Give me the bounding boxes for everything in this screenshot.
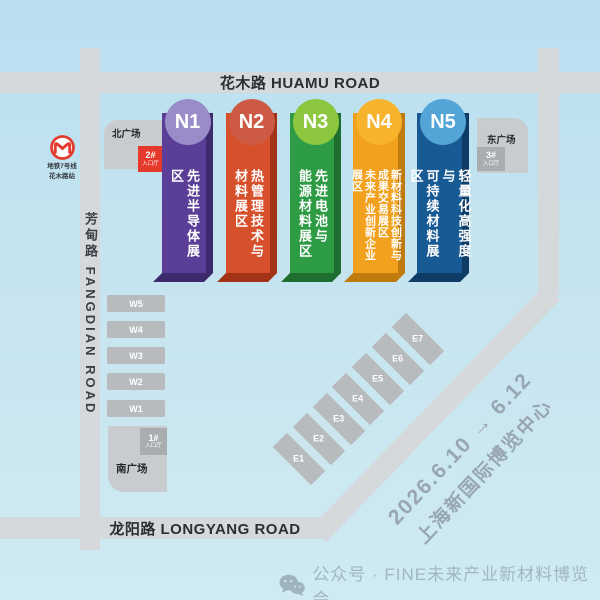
- south-plaza-label: 南广场: [116, 461, 148, 476]
- east-plaza: 东广场 3# 入口厅: [477, 118, 528, 173]
- fangdian-road-label: 芳甸路 FANGDIAN ROAD: [79, 212, 102, 512]
- entrance-3-badge: 3# 入口厅: [477, 147, 505, 171]
- hall-n2-title: 热管理技术与 材料展区: [232, 169, 264, 267]
- hall-n3-badge: N3: [293, 99, 339, 145]
- hall-w5: W5: [107, 295, 165, 312]
- hall-n5-base: [408, 273, 469, 282]
- hall-e6-label: E6: [392, 354, 403, 364]
- hall-n4-base: [344, 273, 405, 282]
- metro-station-label: 花木路站: [36, 173, 88, 181]
- hall-n1-side: [206, 113, 213, 273]
- hall-e4-label: E4: [352, 394, 363, 404]
- hall-n4-badge: N4: [356, 99, 402, 145]
- hall-n5: 轻量化高强度与 可持续材料展区 N5: [417, 99, 469, 282]
- hall-e5-label: E5: [372, 374, 383, 384]
- hall-n3: 先进电池与 能源材料展区 N3: [290, 99, 341, 282]
- hall-w1: W1: [107, 400, 165, 417]
- hall-n1-base: [153, 273, 213, 282]
- hall-w2-label: W2: [129, 377, 143, 387]
- hall-n1-number: N1: [175, 111, 201, 134]
- hall-e2-label: E2: [313, 434, 324, 444]
- hall-w3-label: W3: [129, 351, 143, 361]
- metro-logo-icon: [49, 134, 76, 161]
- east-plaza-label: 东广场: [487, 132, 516, 146]
- metro-line-label: 地铁7号线: [36, 163, 88, 171]
- hall-n2-number: N2: [239, 111, 265, 134]
- north-plaza: 北广场 2# 入口厅: [104, 120, 167, 169]
- hall-w2: W2: [107, 373, 165, 390]
- hall-w1-label: W1: [129, 404, 143, 414]
- longyang-road-label: 龙阳路 LONGYANG ROAD: [109, 518, 300, 539]
- hall-n1: 先进半导体展区 N1: [162, 99, 213, 282]
- huamu-road-label: 花木路 HUAMU ROAD: [220, 72, 380, 93]
- huamu-road: 花木路 HUAMU ROAD: [0, 72, 600, 93]
- north-plaza-label: 北广场: [112, 126, 141, 140]
- hall-n2: 热管理技术与 材料展区 N2: [226, 99, 277, 282]
- hall-w4: W4: [107, 321, 165, 338]
- hall-n2-base: [217, 273, 277, 282]
- venue-map: 花木路 HUAMU ROAD 龙阳路 LONGYANG ROAD 芳甸路 FAN…: [0, 0, 600, 600]
- hall-n1-badge: N1: [165, 99, 211, 145]
- south-plaza: 1# 入口厅 南广场: [108, 426, 167, 492]
- hall-n4: 新材料科技创新与 成果交易展区 未来产业创新企业展区 N4: [353, 99, 405, 282]
- hall-e1-label: E1: [293, 454, 304, 464]
- hall-w3: W3: [107, 347, 165, 364]
- entrance-2-label: 入口厅: [142, 161, 159, 167]
- hall-n2-side: [270, 113, 277, 273]
- entrance-3-label: 入口厅: [483, 161, 500, 167]
- hall-n4-title: 新材料科技创新与 成果交易展区 未来产业创新企业展区: [350, 169, 402, 267]
- entrance-1-label: 入口厅: [145, 443, 162, 449]
- entrance-1-number: 1#: [148, 434, 158, 444]
- entrance-2-number: 2#: [145, 151, 155, 161]
- hall-n5-title: 轻量化高强度与 可持续材料展区: [408, 169, 472, 267]
- footer: 公众号 · FINE未来产业新材料博览会: [278, 560, 600, 600]
- hall-n3-title: 先进电池与 能源材料展区: [296, 169, 328, 267]
- hall-n2-badge: N2: [229, 99, 275, 145]
- hall-n5-number: N5: [430, 111, 456, 134]
- entrance-1-badge: 1# 入口厅: [140, 428, 167, 455]
- footer-account-label: 公众号 · FINE未来产业新材料博览会: [312, 560, 600, 600]
- hall-n5-badge: N5: [420, 99, 466, 145]
- longyang-road: 龙阳路 LONGYANG ROAD: [0, 517, 330, 539]
- event-venue: 上海新国际博览中心: [392, 373, 575, 567]
- hall-n1-title: 先进半导体展区: [168, 169, 200, 267]
- hall-n3-number: N3: [303, 111, 329, 134]
- entrance-3-number: 3#: [486, 151, 496, 161]
- hall-n3-base: [281, 273, 341, 282]
- wechat-icon: [278, 573, 305, 597]
- hall-w5-label: W5: [129, 299, 143, 309]
- hall-e3-label: E3: [333, 414, 344, 424]
- metro-station: 地铁7号线 花木路站: [36, 134, 88, 181]
- hall-n3-side: [334, 113, 341, 273]
- hall-e7-label: E7: [412, 334, 423, 344]
- hall-n4-number: N4: [366, 111, 392, 134]
- entrance-2-badge: 2# 入口厅: [138, 146, 163, 172]
- event-info: 2026.6.10 → 6.12 上海新国际博览中心: [370, 353, 592, 583]
- hall-w4-label: W4: [129, 325, 143, 335]
